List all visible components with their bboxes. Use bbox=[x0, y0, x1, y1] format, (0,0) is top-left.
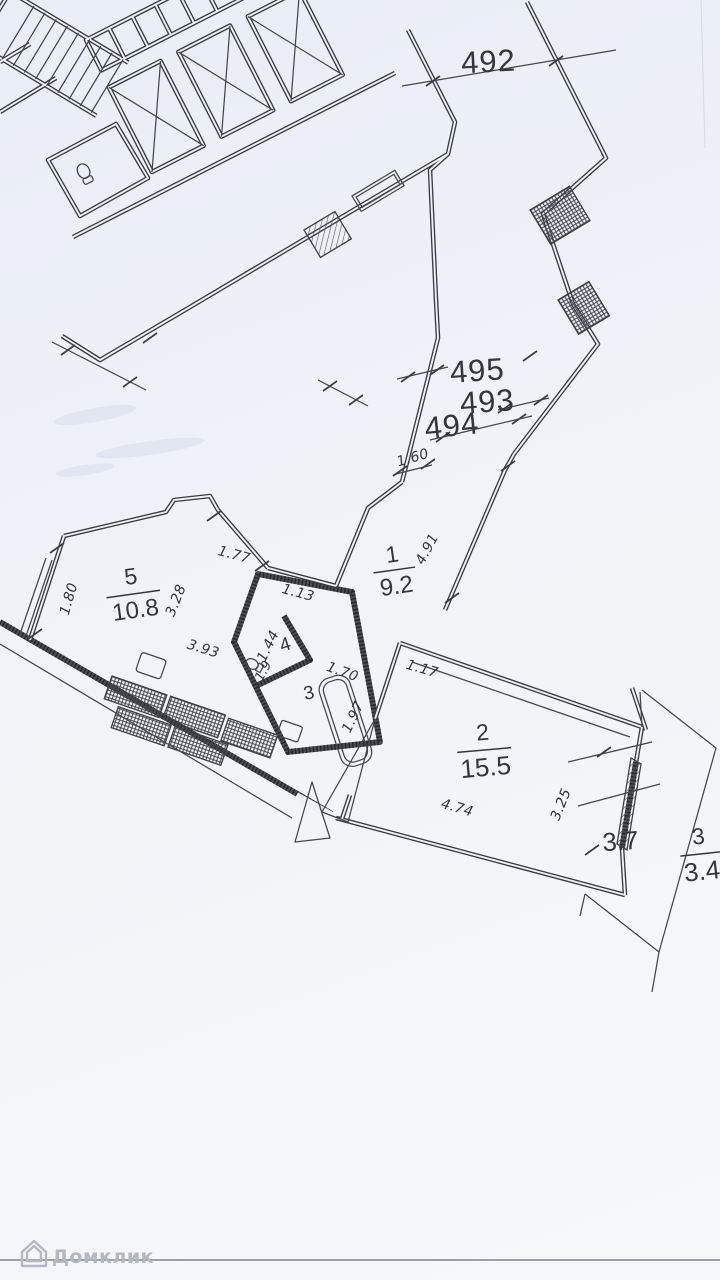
dim-room5-width: 3.28 bbox=[163, 582, 190, 618]
room-3-number: 3 bbox=[302, 682, 317, 705]
balcony-number: 3 bbox=[691, 822, 706, 849]
dim-hallway-length: 4.91 bbox=[413, 531, 443, 567]
toilet-icon bbox=[75, 162, 95, 186]
floor-plan: 492 495 493 494 1 9.2 5 10.8 2 15.5 4 1.… bbox=[0, 0, 720, 1280]
dim-room5-top: 1.77 bbox=[216, 543, 252, 567]
balcony-area-reduced: 3.4 bbox=[682, 854, 720, 888]
balcony-label: 3 3.4 bbox=[677, 821, 720, 888]
ref-492-label: 492 bbox=[460, 43, 516, 81]
room2-inner-line bbox=[412, 662, 630, 737]
room-5-number: 5 bbox=[123, 562, 139, 590]
balcony-area-full: 3.7 bbox=[601, 825, 639, 857]
reference-labels: 492 495 493 494 bbox=[423, 43, 517, 446]
bleed-through-marks bbox=[52, 0, 705, 479]
watermark: Домклик bbox=[22, 1241, 154, 1268]
dim-balcony-window: 3.25 bbox=[548, 786, 575, 822]
room-1-area: 9.2 bbox=[378, 571, 415, 602]
room-5-area: 10.8 bbox=[111, 594, 161, 627]
dim-room4-width: 1.44 bbox=[254, 628, 283, 664]
ref-494-label: 494 bbox=[423, 405, 481, 446]
dim-room5-left: 1.80 bbox=[57, 581, 81, 617]
scanned-floor-plan-page: 492 495 493 494 1 9.2 5 10.8 2 15.5 4 1.… bbox=[0, 0, 720, 1280]
room-1-number: 1 bbox=[384, 540, 400, 568]
vent-shafts bbox=[304, 186, 609, 334]
room-2-area: 15.5 bbox=[459, 750, 512, 784]
home-icon bbox=[22, 1241, 46, 1266]
entrance-opening bbox=[296, 796, 332, 816]
watermark-brand: Домклик bbox=[52, 1246, 154, 1268]
dim-room2-doorway: 1.17 bbox=[404, 657, 440, 681]
room-1-label: 1 9.2 bbox=[369, 538, 419, 602]
room-2-number: 2 bbox=[475, 719, 490, 746]
sink-icon bbox=[135, 652, 166, 679]
room-2-label: 2 15.5 bbox=[455, 717, 514, 784]
room-5-label: 5 10.8 bbox=[102, 560, 164, 628]
dim-room5-length: 3.93 bbox=[185, 637, 221, 662]
dim-room2-length: 4.74 bbox=[439, 796, 475, 820]
dim-bathroom-side: 1.97 bbox=[339, 699, 368, 735]
walls-layer bbox=[0, 0, 646, 895]
vent-block-1 bbox=[530, 186, 590, 244]
